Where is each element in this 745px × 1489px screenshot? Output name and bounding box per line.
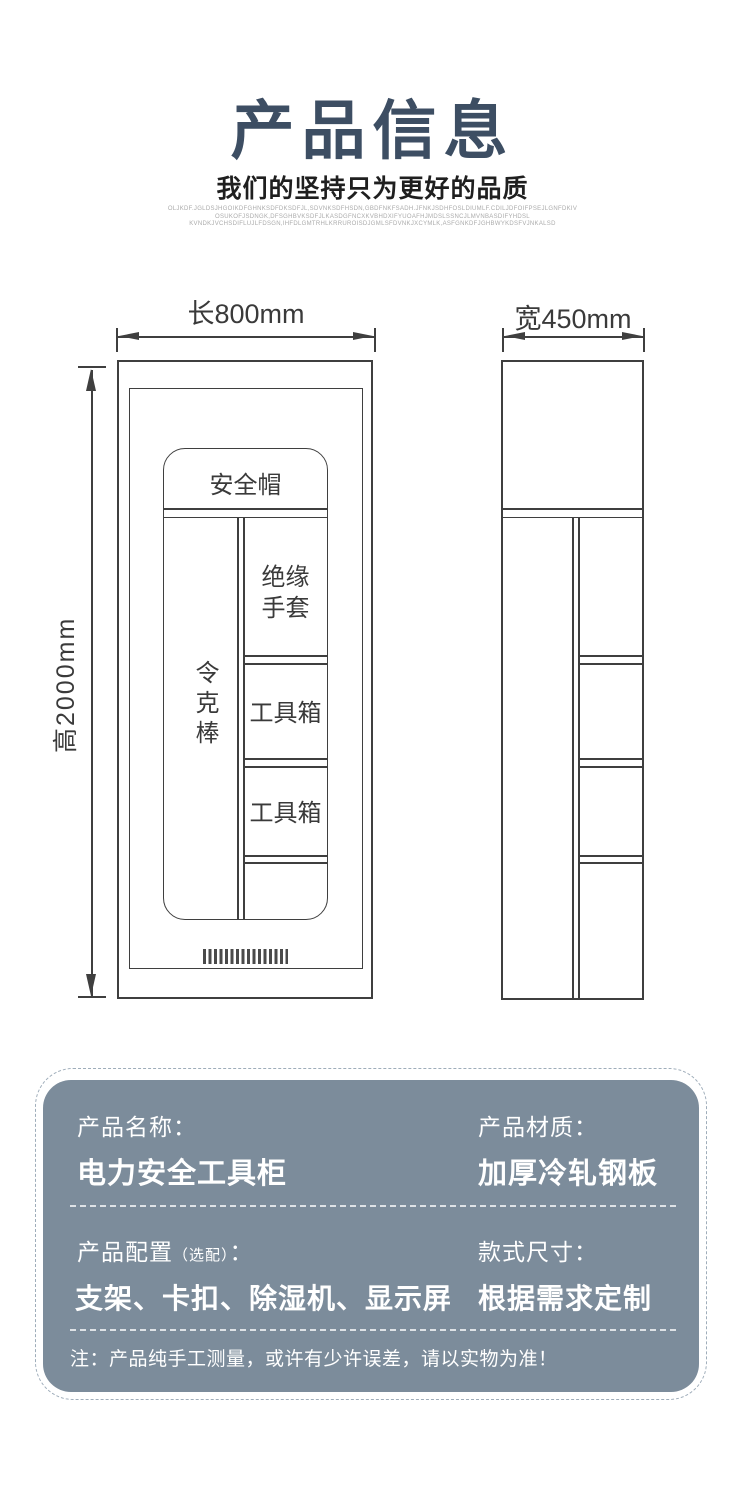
product-name-value: 电力安全工具柜: [77, 1150, 287, 1192]
dimension-tick: [643, 328, 645, 352]
shelf-line: [503, 508, 642, 510]
product-config-label: 产品配置（选配）：: [77, 1233, 254, 1267]
product-info-page: 产品信息 我们的坚持只为更好的品质 OLJKDF.JGLDSJHGOIKDFGH…: [0, 0, 745, 1489]
arrow-left-icon: [505, 332, 525, 340]
shelf-line: [580, 855, 643, 857]
dimension-tick: [502, 328, 504, 352]
divider-line: [572, 518, 574, 998]
arrow-right-icon: [622, 332, 642, 340]
product-material-value: 加厚冷轧钢板: [478, 1150, 658, 1192]
product-name-label: 产品名称：: [77, 1108, 197, 1142]
config-label-main: 产品配置: [77, 1239, 173, 1265]
card-divider: [70, 1329, 676, 1331]
shelf-line: [580, 862, 643, 864]
side-width-dimension-label: 宽450mm: [501, 297, 645, 336]
style-size-value: 根据需求定制: [478, 1277, 652, 1317]
product-material-label: 产品材质：: [478, 1108, 598, 1142]
card-divider: [70, 1205, 676, 1207]
shelf-line: [580, 766, 643, 768]
style-size-label: 款式尺寸：: [478, 1233, 598, 1267]
product-config-value: 支架、卡扣、除湿机、显示屏: [75, 1277, 452, 1317]
shelf-line: [580, 758, 643, 760]
shelf-line: [580, 663, 643, 665]
shelf-line: [580, 655, 643, 657]
config-label-optional: （选配）: [173, 1247, 230, 1264]
config-label-colon: ：: [230, 1239, 254, 1265]
measurement-note: 注：产品纯手工测量，或许有少许误差，请以实物为准！: [70, 1344, 558, 1371]
info-card: 产品名称： 产品材质： 电力安全工具柜 加厚冷轧钢板 产品配置（选配）： 款式尺…: [43, 1080, 699, 1392]
